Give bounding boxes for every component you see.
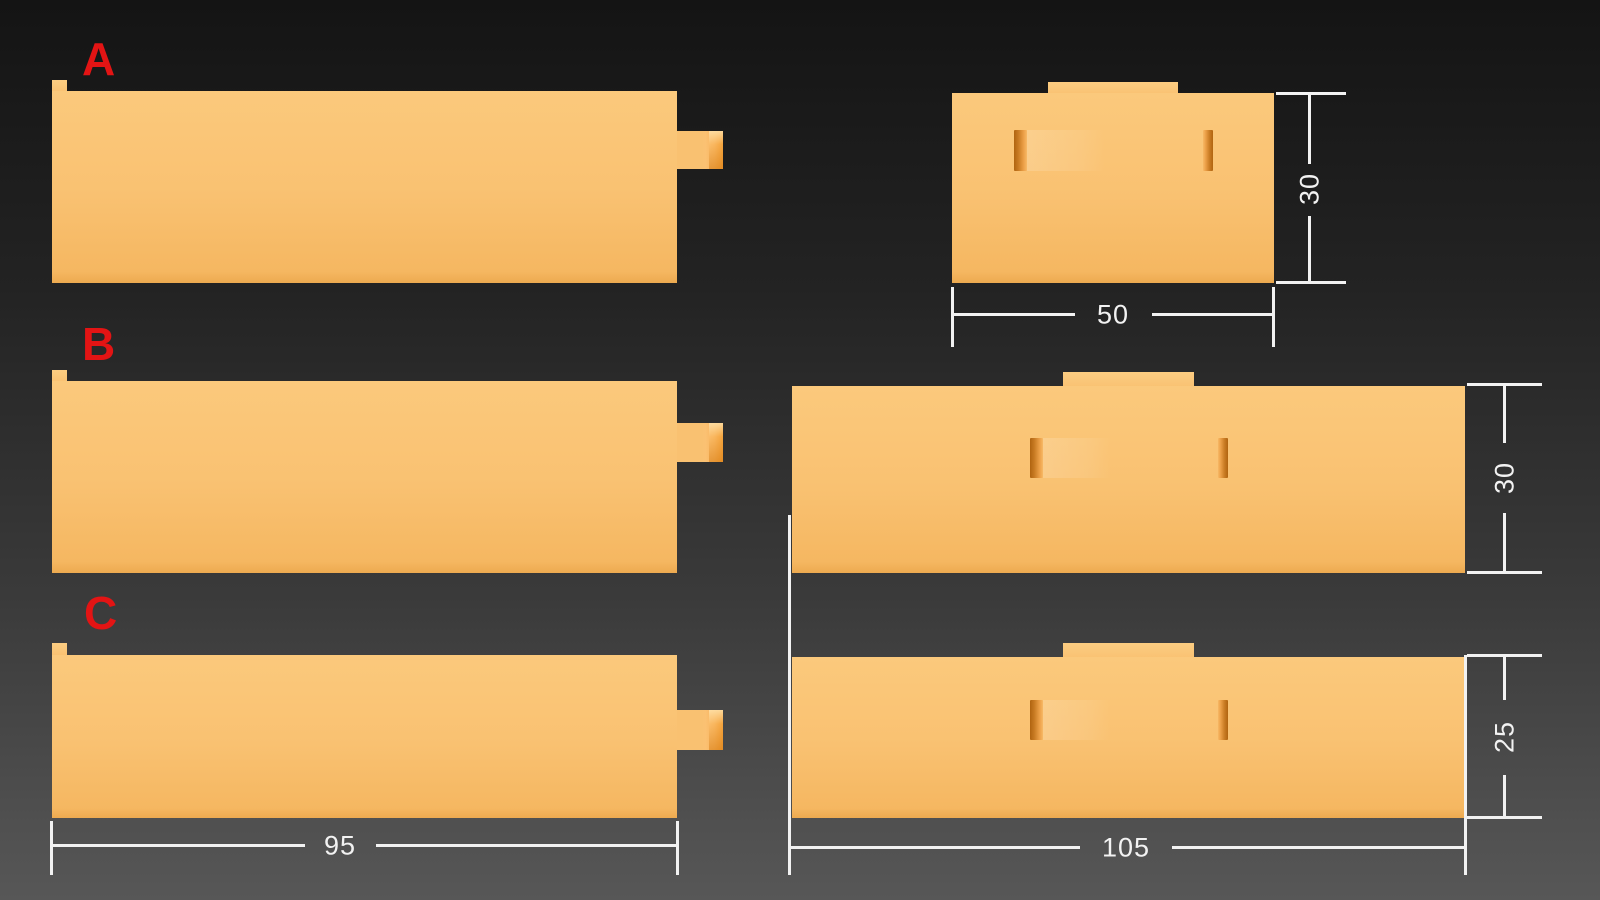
dim-a-height-ext-bottom <box>1276 281 1346 284</box>
dim-c-height-value: 25 <box>1492 721 1519 753</box>
dim-a-width-ext-left <box>951 287 954 347</box>
dim-side-length-ext-right <box>676 821 679 875</box>
part-c-side-right-tab <box>677 710 723 750</box>
dim-a-height-line-upper <box>1308 92 1311 164</box>
dim-a-width-line-left <box>951 313 1075 316</box>
dim-front-length-line-right <box>1172 846 1467 849</box>
part-c-front-slot-right <box>1218 700 1228 740</box>
dim-a-height-line-lower <box>1308 216 1311 284</box>
part-b-side-right-tab <box>677 423 723 462</box>
part-a-side-right-tab <box>677 131 723 169</box>
part-b-front-slot-right <box>1218 438 1228 478</box>
dim-a-height-value: 30 <box>1297 173 1324 205</box>
dim-front-length-line-left <box>788 846 1080 849</box>
label-variant-c: C <box>84 590 117 636</box>
dim-front-length-value: 105 <box>1102 835 1150 862</box>
part-a-side-body <box>52 91 677 283</box>
part-b-front-recess <box>1043 438 1111 478</box>
dim-b-height-value: 30 <box>1492 462 1519 494</box>
dim-front-length-ext-right <box>1464 655 1467 875</box>
part-a-front-slot-right <box>1203 130 1213 171</box>
dim-front-length-ext-left <box>788 515 791 875</box>
part-b-front-body <box>792 386 1465 573</box>
part-a-front-slot-left <box>1014 130 1027 171</box>
dim-a-width-ext-right <box>1272 287 1275 347</box>
part-a-front-recess <box>1027 130 1105 171</box>
dim-b-height-line-lower <box>1503 513 1506 574</box>
part-a-front-body <box>952 93 1274 283</box>
dim-a-height-ext-top <box>1276 92 1346 95</box>
part-c-front-slot-left <box>1030 700 1043 740</box>
label-variant-b: B <box>82 321 115 367</box>
dim-c-height-line-lower <box>1503 775 1506 819</box>
part-b-front-slot-left <box>1030 438 1043 478</box>
dim-c-height-line-upper <box>1503 654 1506 700</box>
render-viewport: A B C <box>0 0 1600 900</box>
part-c-front-body <box>792 657 1465 818</box>
part-c-front-recess <box>1043 700 1111 740</box>
dim-side-length-value: 95 <box>324 833 356 860</box>
dim-a-width-line-right <box>1152 313 1275 316</box>
dim-side-length-ext-left <box>50 821 53 875</box>
dim-a-width-value: 50 <box>1097 302 1129 329</box>
label-variant-a: A <box>82 36 115 82</box>
dim-b-height-line-upper <box>1503 383 1506 443</box>
dim-side-length-line-right <box>376 844 679 847</box>
part-c-side-body <box>52 655 677 818</box>
dim-side-length-line-left <box>50 844 305 847</box>
part-b-side-body <box>52 381 677 573</box>
